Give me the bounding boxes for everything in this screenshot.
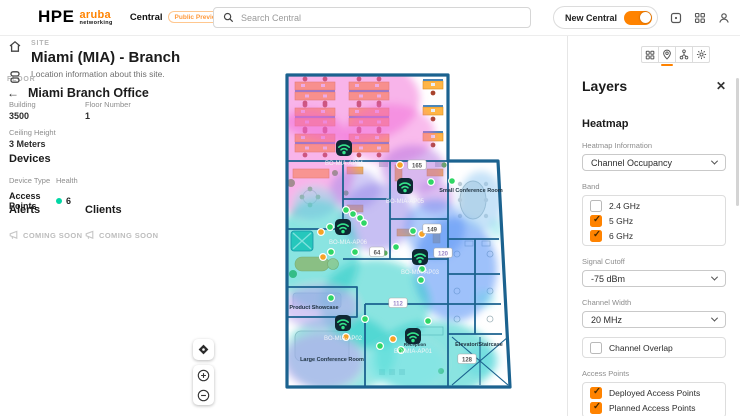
band-option-2-4ghz[interactable]: 2.4 GHz — [590, 198, 718, 213]
deployed-aps-option[interactable]: Deployed Access Points — [590, 385, 718, 400]
client-dot-green[interactable] — [343, 207, 350, 214]
user-account-icon[interactable] — [717, 11, 730, 24]
room-label: Small Conference Room — [439, 188, 503, 194]
floor-name: Miami Branch Office — [28, 86, 149, 100]
close-icon[interactable]: ✕ — [716, 80, 726, 92]
grid-view-button[interactable] — [641, 46, 659, 63]
ap-label: BO-MIA-AP03 — [401, 270, 440, 276]
product-name: Central — [130, 12, 163, 23]
client-dot-green[interactable] — [361, 220, 368, 227]
location-pin-icon — [662, 49, 672, 60]
alerts-block: Alerts COMING SOON — [9, 204, 85, 240]
checkbox[interactable] — [590, 200, 602, 212]
ap-label: BO-MIA-AP01 — [394, 349, 433, 355]
signal-cutoff-label: Signal Cutoff — [582, 257, 726, 266]
client-dot-green[interactable] — [352, 249, 359, 256]
channel-overlap-option[interactable]: Channel Overlap — [590, 340, 718, 355]
settings-button[interactable] — [692, 46, 710, 63]
alerts-coming-soon: COMING SOON — [9, 230, 85, 240]
channel-pill-label: 165 — [412, 163, 423, 169]
floor-plan[interactable]: Small Conference RoomProduct ShowcaseLar… — [285, 69, 558, 399]
feedback-icon[interactable] — [669, 11, 682, 24]
megaphone-icon — [85, 230, 95, 240]
client-dot-orange[interactable] — [318, 229, 325, 236]
brand-logo: HPE aruba networking Central Public Prev… — [38, 7, 227, 27]
app-header: HPE aruba networking Central Public Prev… — [0, 0, 740, 36]
heatmap-information-label: Heatmap Information — [582, 141, 726, 150]
floor-summary: FLOOR ← Miami Branch Office — [7, 76, 149, 100]
client-dot-green[interactable] — [377, 343, 384, 350]
heatmap-section-title: Heatmap — [582, 118, 726, 130]
location-view-button[interactable] — [658, 46, 676, 63]
client-dot-green[interactable] — [428, 179, 435, 186]
channel-pill-label: 64 — [374, 250, 381, 256]
layers-title: Layers — [582, 78, 627, 94]
alerts-title: Alerts — [9, 204, 85, 216]
new-central-switch[interactable]: New Central — [553, 6, 658, 29]
client-dot-orange[interactable] — [397, 162, 404, 169]
global-search[interactable] — [213, 7, 531, 28]
ap-label: BO-MIA-AP04 — [325, 161, 364, 167]
checkbox[interactable] — [590, 387, 602, 399]
new-central-toggle[interactable] — [624, 11, 652, 25]
room-label: Elevator/Staircase — [455, 342, 503, 348]
planned-aps-option[interactable]: Planned Access Points — [590, 400, 718, 415]
device-type-col: Device Type — [9, 176, 56, 185]
channel-pill-label: 128 — [462, 357, 473, 363]
field-floor-number: Floor Number 1 — [85, 100, 209, 121]
client-dot-orange[interactable] — [390, 336, 397, 343]
room-label: Product Showcase — [289, 305, 338, 311]
client-dot-green[interactable] — [328, 249, 335, 256]
nav-rail — [8, 40, 22, 89]
chevron-down-icon — [711, 315, 718, 322]
aruba-logo: aruba networking — [79, 10, 112, 27]
client-dot-green[interactable] — [393, 244, 400, 251]
apps-grid-icon[interactable] — [693, 11, 706, 24]
checkbox[interactable] — [590, 342, 602, 354]
health-col: Health — [56, 176, 209, 185]
clients-block: Clients COMING SOON — [85, 204, 229, 240]
client-dot-green[interactable] — [449, 178, 456, 185]
ap-label: BO-MIA-AP06 — [329, 240, 368, 246]
field-building: Building 3500 — [9, 100, 85, 121]
access-points-group: Deployed Access Points Planned Access Po… — [582, 382, 726, 416]
channel-pill-label: 120 — [438, 251, 449, 257]
checkbox[interactable] — [590, 402, 602, 414]
home-icon[interactable] — [8, 40, 22, 58]
topology-view-button[interactable] — [675, 46, 693, 63]
ap-label: BO-MIA-AP05 — [386, 199, 425, 205]
field-ceiling-height: Ceiling Height 3 Meters — [9, 128, 85, 149]
hpe-logo: HPE — [38, 7, 74, 27]
client-dot-green[interactable] — [362, 316, 369, 323]
ap-marker[interactable] — [335, 219, 351, 235]
site-label: SITE — [31, 40, 261, 47]
channel-width-select[interactable]: 20 MHz — [582, 311, 726, 328]
zoom-out-button[interactable] — [193, 385, 214, 405]
topology-icon — [679, 49, 689, 60]
channel-overlap-group: Channel Overlap — [582, 337, 726, 358]
band-option-6ghz[interactable]: 6 GHz — [590, 228, 718, 243]
ap-marker[interactable] — [336, 140, 352, 156]
client-dot-green[interactable] — [328, 295, 335, 302]
client-dot-green[interactable] — [418, 277, 425, 284]
zoom-in-icon — [197, 369, 210, 382]
devices-section: Devices Device Type Health Access Points… — [9, 153, 209, 211]
chevron-down-icon — [711, 274, 718, 281]
client-dot-green[interactable] — [327, 224, 334, 231]
client-dot-orange[interactable] — [320, 254, 327, 261]
band-group: 2.4 GHz 5 GHz 6 GHz — [582, 195, 726, 246]
zoom-out-icon — [197, 389, 210, 402]
zoom-controls — [193, 365, 214, 405]
megaphone-icon — [9, 230, 19, 240]
room-label: Large Conference Room — [300, 357, 364, 363]
gear-icon — [696, 49, 707, 60]
client-dot-green[interactable] — [350, 211, 357, 218]
alerts-clients-section: Alerts COMING SOON Clients COMING SOON — [9, 204, 229, 240]
recenter-icon — [197, 343, 210, 356]
ap-marker[interactable] — [335, 315, 351, 331]
site-name: Miami (MIA) - Branch — [31, 49, 261, 66]
channel-width-label: Channel Width — [582, 298, 726, 307]
floor-fields: Building 3500 Floor Number 1 Ceiling Hei… — [9, 100, 209, 149]
chevron-down-icon — [711, 158, 718, 165]
ap-label: BO-MIA-AP02 — [324, 336, 363, 342]
band-label: Band — [582, 182, 726, 191]
map-controls — [193, 339, 214, 405]
access-points-label: Access Points — [582, 369, 726, 378]
layers-panel: Layers ✕ Heatmap Heatmap Information Cha… — [567, 36, 740, 416]
panel-scrollbar[interactable] — [736, 78, 739, 206]
checkbox[interactable] — [590, 215, 602, 227]
grid-view-icon — [645, 50, 655, 60]
header-actions: New Central — [553, 6, 730, 29]
clients-title: Clients — [85, 204, 229, 216]
channel-pill-label: 149 — [427, 227, 438, 233]
recenter-button[interactable] — [193, 339, 214, 360]
map-view-toolbar — [641, 46, 710, 63]
ap-marker[interactable] — [397, 178, 413, 194]
client-dot-green[interactable] — [410, 228, 417, 235]
band-option-5ghz[interactable]: 5 GHz — [590, 213, 718, 228]
devices-title: Devices — [9, 153, 209, 165]
ap-marker[interactable] — [412, 249, 428, 265]
client-dot-green[interactable] — [425, 318, 432, 325]
clients-coming-soon: COMING SOON — [85, 230, 229, 240]
channel-pill-label: 112 — [393, 301, 403, 307]
search-input[interactable] — [241, 13, 522, 23]
site-summary: SITE Miami (MIA) - Branch Location infor… — [31, 40, 261, 79]
search-icon — [222, 11, 235, 24]
floor-label: FLOOR — [7, 76, 149, 83]
checkbox[interactable] — [590, 230, 602, 242]
app-window: HPE aruba networking Central Public Prev… — [0, 0, 740, 416]
zoom-in-button[interactable] — [193, 365, 214, 385]
sites-icon[interactable] — [8, 70, 22, 89]
signal-cutoff-select[interactable]: -75 dBm — [582, 270, 726, 287]
heatmap-information-select[interactable]: Channel Occupancy — [582, 154, 726, 171]
ap-marker[interactable] — [405, 328, 421, 344]
